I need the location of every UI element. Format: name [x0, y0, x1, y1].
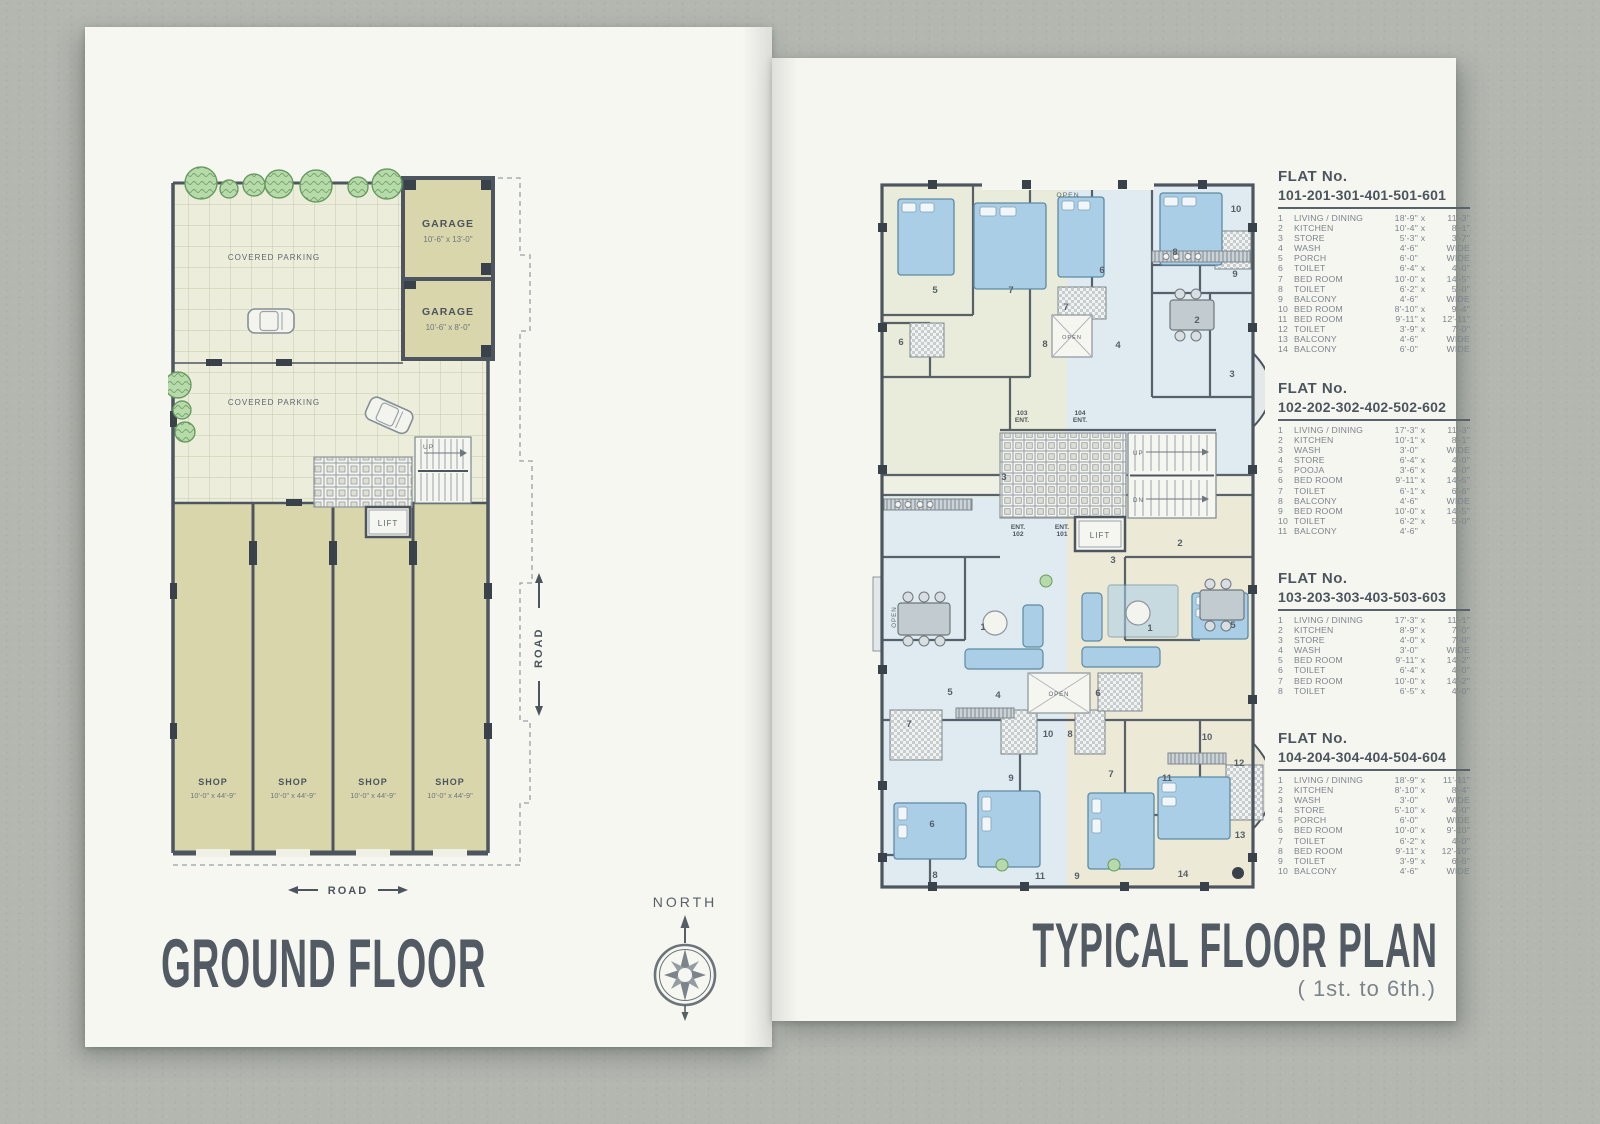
flat-row-cell: 11'-11" — [1428, 775, 1470, 785]
flat-row-cell: x — [1418, 274, 1428, 284]
typical-floor-plan: UP DN LIFT OPEN OPEN — [870, 165, 1265, 907]
svg-text:ROAD: ROAD — [328, 885, 368, 897]
flat-row-cell: 7'-0" — [1428, 635, 1470, 645]
flat-row-cell: 14'-5" — [1428, 475, 1470, 485]
flat-row-cell: WIDE — [1428, 815, 1470, 825]
flat-row-cell: WASH — [1294, 445, 1378, 455]
flat-row-cell: 12'-11" — [1428, 314, 1470, 324]
room-number: 6 — [929, 819, 934, 830]
flat-row-cell: WIDE — [1428, 344, 1470, 354]
flat-row-cell: 7'-0" — [1428, 625, 1470, 635]
flat-row-cell: 17'-3" — [1378, 425, 1418, 435]
room-number: 12 — [1234, 758, 1245, 769]
flat-row-cell: x — [1418, 836, 1428, 846]
flat-row-cell: LIVING / DINING — [1294, 213, 1378, 223]
flat-row-cell: 3'-9" — [1378, 856, 1418, 866]
flat-row-cell: TOILET — [1294, 856, 1378, 866]
flat-row-cell: WIDE — [1428, 445, 1470, 455]
room-number: 4 — [1115, 340, 1121, 351]
flat-table-104: FLAT No. 104-204-304-404-504-604 1LIVING… — [1278, 730, 1470, 876]
flat-row-cell: 10'-1" — [1378, 435, 1418, 445]
flat-row-cell: x — [1418, 486, 1428, 496]
svg-text:GARAGE: GARAGE — [422, 306, 474, 318]
flat-table-103: FLAT No. 103-203-303-403-503-603 1LIVING… — [1278, 570, 1470, 696]
flat-row-cell: 10'-0" — [1378, 506, 1418, 516]
svg-text:GARAGE: GARAGE — [422, 218, 474, 230]
flat-heading: FLAT No. — [1278, 570, 1470, 587]
flat-row-cell: 4'-6" — [1378, 243, 1418, 253]
room-number: 7 — [906, 719, 911, 730]
flat-row-cell: 3'-0" — [1378, 795, 1418, 805]
flat-row-cell: 6 — [1278, 475, 1294, 485]
flat-row-cell: 9 — [1278, 294, 1294, 304]
flat-row-cell: BALCONY — [1294, 294, 1378, 304]
flat-row-cell: BED ROOM — [1294, 676, 1378, 686]
open-top-label: OPEN — [1056, 192, 1079, 199]
flat-row-cell: 11'-3" — [1428, 425, 1470, 435]
flat-heading: FLAT No. — [1278, 380, 1470, 397]
svg-text:OPEN: OPEN — [1062, 335, 1082, 341]
flat-row-cell: 6'-0" — [1378, 344, 1418, 354]
flat-row-cell: 5 — [1278, 465, 1294, 475]
flat-row-cell: x — [1418, 455, 1428, 465]
flat-row-cell: 10'-0" — [1378, 274, 1418, 284]
flat-row-cell: 4 — [1278, 243, 1294, 253]
ent-103-label: 103ENT. — [1015, 410, 1029, 424]
flat-row-cell: 6 — [1278, 263, 1294, 273]
flat-row-cell — [1428, 526, 1470, 536]
flat-row-cell: 4'-0" — [1378, 635, 1418, 645]
road-right-label: ROAD — [533, 573, 545, 716]
flat-row-cell: 2 — [1278, 435, 1294, 445]
flat-row-cell: 3 — [1278, 233, 1294, 243]
flat-row-cell: 1 — [1278, 425, 1294, 435]
flat-row-cell: 3'-0" — [1378, 645, 1418, 655]
ground-floor-title: GROUND FLOOR — [161, 925, 486, 1004]
flat-row-cell: BALCONY — [1294, 334, 1378, 344]
flat-row-cell: 9'-11" — [1378, 475, 1418, 485]
flat-row-cell: 3 — [1278, 795, 1294, 805]
flat-row-cell: TOILET — [1294, 284, 1378, 294]
flat-row-cell: 8'-1" — [1428, 223, 1470, 233]
typical-floor-plan-subtitle: ( 1st. to 6th.) — [1298, 976, 1437, 1002]
flat-row-cell — [1418, 344, 1428, 354]
flat-row-cell: BED ROOM — [1294, 655, 1378, 665]
svg-text:10'-0" x 44'-9": 10'-0" x 44'-9" — [350, 791, 396, 800]
flat-row-cell: 11'-1" — [1428, 615, 1470, 625]
flat-row-cell: x — [1418, 676, 1428, 686]
flat-row-cell: LIVING / DINING — [1294, 615, 1378, 625]
flat-row-cell: 9'-11" — [1378, 314, 1418, 324]
flat-row-cell: 7 — [1278, 676, 1294, 686]
room-number: 8 — [1067, 729, 1072, 740]
flat-row-cell: WIDE — [1428, 243, 1470, 253]
flat-row-cell: 7 — [1278, 486, 1294, 496]
flat-row-cell: LIVING / DINING — [1294, 425, 1378, 435]
flat-row-cell: KITCHEN — [1294, 223, 1378, 233]
room-number: 3 — [1229, 369, 1234, 380]
flat-row-cell — [1418, 815, 1428, 825]
room-number: 11 — [1162, 773, 1173, 784]
room-number: 9 — [1232, 269, 1237, 280]
flat-row-cell: 13 — [1278, 334, 1294, 344]
compass-rose: NORTH — [619, 887, 751, 1037]
svg-text:LIFT: LIFT — [1090, 531, 1110, 540]
flat-row-cell: BED ROOM — [1294, 825, 1378, 835]
room-number: 8 — [932, 870, 937, 881]
flat-row-cell: WIDE — [1428, 795, 1470, 805]
flat-row-cell: 2 — [1278, 625, 1294, 635]
room-number: 14 — [1178, 869, 1189, 880]
flat-row-cell: 4'-6" — [1378, 866, 1418, 876]
flat-row-cell: WIDE — [1428, 334, 1470, 344]
flat-row-cell: x — [1418, 805, 1428, 815]
room-number: 8 — [1042, 339, 1047, 350]
flat-row-cell: 7 — [1278, 274, 1294, 284]
brochure-page-right: UP DN LIFT OPEN OPEN — [772, 58, 1456, 1021]
flat-row-cell: 8 — [1278, 496, 1294, 506]
flat-row-cell: x — [1418, 223, 1428, 233]
flat-row-cell: 17'-3" — [1378, 615, 1418, 625]
flat-row-cell: 4'-0" — [1428, 665, 1470, 675]
flat-row-cell: 9 — [1278, 506, 1294, 516]
flat-row-cell: 7 — [1278, 836, 1294, 846]
flat-row-cell: TOILET — [1294, 836, 1378, 846]
flat-row-cell: WASH — [1294, 645, 1378, 655]
parked-car-1 — [248, 309, 294, 333]
flat-row-cell: 4'-6" — [1378, 294, 1418, 304]
flat-row-cell: x — [1418, 233, 1428, 243]
lift-ground: LIFT — [366, 507, 410, 537]
service-dot — [1232, 867, 1244, 879]
flat-row-cell: TOILET — [1294, 516, 1378, 526]
flat-row-cell: BALCONY — [1294, 344, 1378, 354]
flat-row-cell: BED ROOM — [1294, 475, 1378, 485]
flat-row-cell: 6'-4" — [1378, 665, 1418, 675]
up-label: UP — [423, 444, 434, 451]
flat-row-cell: 8'-10" — [1378, 304, 1418, 314]
ent-102-label: ENT.102 — [1011, 524, 1025, 538]
flat-row-cell: 6'-1" — [1378, 486, 1418, 496]
flat-row-cell: WASH — [1294, 243, 1378, 253]
flat-row-cell: x — [1418, 324, 1428, 334]
flat-row-cell: 9'-11" — [1378, 655, 1418, 665]
flat-row-cell: 4'-0" — [1428, 836, 1470, 846]
flat-row-cell: PORCH — [1294, 253, 1378, 263]
flat-row-cell: 14'-2" — [1428, 676, 1470, 686]
room-number: 6 — [1095, 688, 1100, 699]
flat-row-cell: TOILET — [1294, 665, 1378, 675]
flat-row-cell: 6 — [1278, 825, 1294, 835]
svg-text:SHOP: SHOP — [198, 777, 228, 787]
flat-row-cell: 14'-2" — [1428, 655, 1470, 665]
flat-row-cell — [1418, 294, 1428, 304]
flat-row-cell: 6'-6" — [1428, 486, 1470, 496]
flat-row-cell: 10 — [1278, 516, 1294, 526]
flat-row-cell: 8 — [1278, 846, 1294, 856]
flat-row-cell: TOILET — [1294, 486, 1378, 496]
flat-row-cell: x — [1418, 425, 1428, 435]
flat-row-cell: x — [1418, 475, 1428, 485]
flat-row-cell: 4'-0" — [1428, 455, 1470, 465]
road-bottom-label: ROAD — [288, 885, 408, 897]
flat-row-cell: 6'-2" — [1378, 836, 1418, 846]
flat-row-cell: 14'-5" — [1428, 506, 1470, 516]
north-label: NORTH — [653, 894, 718, 910]
flat-row-cell: 6'-4" — [1378, 455, 1418, 465]
flat-row-cell: TOILET — [1294, 324, 1378, 334]
room-number: 6 — [898, 337, 903, 348]
flat-row-cell: 5 — [1278, 253, 1294, 263]
flat-row-cell: BED ROOM — [1294, 846, 1378, 856]
flat-row-cell: 5'-0" — [1428, 516, 1470, 526]
room-number: 10 — [1231, 204, 1242, 215]
flat-row-cell: 2 — [1278, 785, 1294, 795]
flat-row-cell: PORCH — [1294, 815, 1378, 825]
flat-table-101: FLAT No. 101-201-301-401-501-601 1LIVING… — [1278, 168, 1470, 354]
flat-row-cell: 8 — [1278, 284, 1294, 294]
open-well-top: OPEN — [1052, 315, 1092, 357]
flat-row-cell: 14 — [1278, 344, 1294, 354]
flat-row-cell: x — [1418, 516, 1428, 526]
room-number: 1 — [1147, 623, 1153, 634]
flat-row-cell: x — [1418, 263, 1428, 273]
flat-rows: 1LIVING / DINING17'-3"x11'-1"2KITCHEN8'-… — [1278, 615, 1470, 696]
flat-row-cell: 8'-9" — [1378, 625, 1418, 635]
flat-heading: FLAT No. — [1278, 730, 1470, 747]
covered-parking-label-1: COVERED PARKING — [228, 253, 320, 262]
flat-row-cell: 4'-0" — [1428, 263, 1470, 273]
scanned-brochure: { "left_page": { "title": "GROUND FLOOR"… — [0, 0, 1600, 1124]
flat-row-cell: 6 — [1278, 665, 1294, 675]
flat-heading: FLAT No. — [1278, 168, 1470, 185]
flat-row-cell: WIDE — [1428, 294, 1470, 304]
flat-row-cell: 4'-6" — [1378, 526, 1418, 536]
flat-rows: 1LIVING / DINING18'-9"x11'-11"2KITCHEN8'… — [1278, 775, 1470, 876]
flat-row-cell: x — [1418, 686, 1428, 696]
flat-row-cell: BALCONY — [1294, 526, 1378, 536]
flat-row-cell: BED ROOM — [1294, 506, 1378, 516]
room-number: 10 — [1202, 732, 1213, 743]
flat-row-cell — [1418, 334, 1428, 344]
flat-row-cell: WIDE — [1428, 253, 1470, 263]
flat-row-cell: x — [1418, 435, 1428, 445]
flat-row-cell: STORE — [1294, 455, 1378, 465]
svg-text:10'-6" x 8'-0": 10'-6" x 8'-0" — [426, 323, 471, 332]
flat-row-cell: STORE — [1294, 233, 1378, 243]
flat-row-cell: 5 — [1278, 815, 1294, 825]
room-number: 9 — [1074, 871, 1079, 882]
room-number: 2 — [1177, 538, 1182, 549]
flat-row-cell: BED ROOM — [1294, 304, 1378, 314]
flat-row-cell: 4 — [1278, 805, 1294, 815]
flat-row-cell: 11'-3" — [1428, 213, 1470, 223]
flat-row-cell: x — [1418, 506, 1428, 516]
flat-row-cell: 6'-2" — [1378, 284, 1418, 294]
flat-row-cell: 6'-5" — [1378, 686, 1418, 696]
flat-row-cell: 8 — [1278, 686, 1294, 696]
flat-table-102: FLAT No. 102-202-302-402-502-602 1LIVING… — [1278, 380, 1470, 536]
flat-numbers: 102-202-302-402-502-602 — [1278, 399, 1470, 415]
flat-row-cell: x — [1418, 213, 1428, 223]
flat-row-cell: 6'-0" — [1378, 253, 1418, 263]
room-number: 7 — [1008, 285, 1013, 296]
flat-row-cell: 4'-0" — [1428, 465, 1470, 475]
room-number: 7 — [1063, 302, 1068, 313]
room-number: 6 — [1099, 265, 1104, 276]
svg-text:ROAD: ROAD — [533, 628, 545, 668]
flat-row-cell: x — [1418, 846, 1428, 856]
flat-row-cell: 3'-9" — [1378, 324, 1418, 334]
room-number: 10 — [1043, 729, 1054, 740]
flat-row-cell: STORE — [1294, 805, 1378, 815]
svg-text:LIFT: LIFT — [378, 519, 398, 528]
flat-row-cell: 6'-2" — [1378, 516, 1418, 526]
flat-row-cell: x — [1418, 655, 1428, 665]
flat-row-cell: 1 — [1278, 615, 1294, 625]
room-number: 11 — [1035, 871, 1046, 882]
room-number: 5 — [932, 285, 938, 296]
svg-text:10'-0" x 44'-9": 10'-0" x 44'-9" — [270, 791, 316, 800]
svg-text:10'-0" x 44'-9": 10'-0" x 44'-9" — [427, 791, 473, 800]
flat-row-cell: 11 — [1278, 314, 1294, 324]
flat-row-cell: 10 — [1278, 304, 1294, 314]
flat-row-cell: TOILET — [1294, 263, 1378, 273]
shops-block — [173, 503, 488, 853]
staircase: UP — [415, 437, 471, 503]
flat-row-cell: 9'-4" — [1428, 304, 1470, 314]
flat-row-cell: 14'-5" — [1428, 274, 1470, 284]
flat-row-cell: x — [1418, 304, 1428, 314]
flat-row-cell: 5'-10" — [1378, 805, 1418, 815]
svg-text:SHOP: SHOP — [435, 777, 465, 787]
flat-row-cell: 9'-11" — [1378, 846, 1418, 856]
room-number: 5 — [1230, 620, 1236, 631]
flat-row-cell: TOILET — [1294, 686, 1378, 696]
core-paving — [1000, 433, 1126, 518]
flat-row-cell — [1418, 253, 1428, 263]
svg-text:OPEN: OPEN — [1048, 692, 1069, 698]
flat-row-cell: WIDE — [1428, 645, 1470, 655]
room-number: 3 — [1001, 472, 1006, 483]
flat-row-cell: 12 — [1278, 324, 1294, 334]
flat-row-cell: WIDE — [1428, 496, 1470, 506]
flat-row-cell: BED ROOM — [1294, 314, 1378, 324]
flat-row-cell: KITCHEN — [1294, 435, 1378, 445]
flat-row-cell: 10'-0" — [1378, 676, 1418, 686]
flat-row-cell: 3 — [1278, 635, 1294, 645]
flat-row-cell — [1418, 243, 1428, 253]
compass: NORTH — [619, 887, 751, 1037]
flat-row-cell: 8'-10" — [1378, 785, 1418, 795]
flat-row-cell: x — [1418, 785, 1428, 795]
flat-row-cell — [1418, 866, 1428, 876]
ent-104-label: 104ENT. — [1073, 410, 1087, 424]
svg-text:DN: DN — [1133, 497, 1144, 504]
flat-row-cell: 3'-6" — [1378, 465, 1418, 475]
flat-row-cell: 10 — [1278, 866, 1294, 876]
flat-rows: 1LIVING / DINING18'-9"x11'-3"2KITCHEN10'… — [1278, 213, 1470, 354]
room-number: 5 — [947, 687, 953, 698]
room-number: 9 — [1008, 773, 1013, 784]
flat-row-cell: 18'-9" — [1378, 775, 1418, 785]
covered-parking-label-2: COVERED PARKING — [228, 398, 320, 407]
open-well-bottom: OPEN — [1028, 673, 1090, 713]
flat-row-cell: 9'-10" — [1428, 825, 1470, 835]
svg-text:UP: UP — [1133, 450, 1144, 457]
flat-row-cell: 3'-7" — [1428, 233, 1470, 243]
flat-row-cell: BED ROOM — [1294, 274, 1378, 284]
flat-row-cell: 8'-1" — [1428, 435, 1470, 445]
flat-row-cell: x — [1418, 825, 1428, 835]
flat-row-cell: 18'-9" — [1378, 213, 1418, 223]
svg-text:SHOP: SHOP — [358, 777, 388, 787]
top-open-gap — [982, 180, 1154, 190]
flat-row-cell — [1418, 526, 1428, 536]
flat-row-cell: 6'-6" — [1428, 856, 1470, 866]
flat-row-cell: KITCHEN — [1294, 785, 1378, 795]
open-left-label: OPEN — [891, 606, 898, 628]
svg-text:SHOP: SHOP — [278, 777, 308, 787]
room-number: 3 — [1110, 555, 1115, 566]
flat-row-cell: x — [1418, 856, 1428, 866]
room-number: 7 — [1108, 769, 1113, 780]
flat-rows: 1LIVING / DINING17'-3"x11'-3"2KITCHEN10'… — [1278, 425, 1470, 536]
entry-paving — [314, 457, 412, 507]
room-number: 4 — [995, 690, 1001, 701]
flat-row-cell: x — [1418, 615, 1428, 625]
flat-row-cell: x — [1418, 465, 1428, 475]
ent-101-label: ENT.101 — [1055, 524, 1069, 538]
svg-text:10'-0" x 44'-9": 10'-0" x 44'-9" — [190, 791, 236, 800]
flat-row-cell — [1418, 445, 1428, 455]
flat-row-cell: x — [1418, 284, 1428, 294]
flat-row-cell: BALCONY — [1294, 496, 1378, 506]
flat-row-cell: x — [1418, 775, 1428, 785]
flat-row-cell: 10'-4" — [1378, 223, 1418, 233]
lift-typical: LIFT — [1075, 517, 1125, 551]
flat-row-cell: 4'-6" — [1378, 496, 1418, 506]
flat-row-cell: 4'-0" — [1428, 805, 1470, 815]
flat-numbers: 103-203-303-403-503-603 — [1278, 589, 1470, 605]
flat-row-cell: 12'-10" — [1428, 846, 1470, 856]
flat-row-cell — [1418, 645, 1428, 655]
flat-row-cell: POOJA — [1294, 465, 1378, 475]
flat-row-cell: 4 — [1278, 455, 1294, 465]
flat-row-cell: 7'-0" — [1428, 324, 1470, 334]
flat-row-cell: 4 — [1278, 645, 1294, 655]
flat-row-cell: x — [1418, 635, 1428, 645]
flat-row-cell — [1418, 496, 1428, 506]
flat-row-cell: LIVING / DINING — [1294, 775, 1378, 785]
flat-row-cell: x — [1418, 625, 1428, 635]
flat-row-cell: 11 — [1278, 526, 1294, 536]
flat-row-cell: 5'-0" — [1428, 284, 1470, 294]
room-number: 8 — [1172, 247, 1177, 258]
flat-row-cell: 1 — [1278, 213, 1294, 223]
flat-row-cell: 5 — [1278, 655, 1294, 665]
ground-floor-plan: UP LIFT — [168, 163, 570, 911]
flat-row-cell: 6'-4" — [1378, 263, 1418, 273]
flat-row-cell: 6'-0" — [1378, 815, 1418, 825]
flat-numbers: 104-204-304-404-504-604 — [1278, 749, 1470, 765]
flat-row-cell: 10'-0" — [1378, 825, 1418, 835]
flat-row-cell — [1418, 795, 1428, 805]
flat-row-cell: 4'-0" — [1428, 686, 1470, 696]
flat-row-cell: STORE — [1294, 635, 1378, 645]
flat-row-cell: x — [1418, 314, 1428, 324]
brochure-page-left: UP LIFT — [85, 27, 772, 1047]
